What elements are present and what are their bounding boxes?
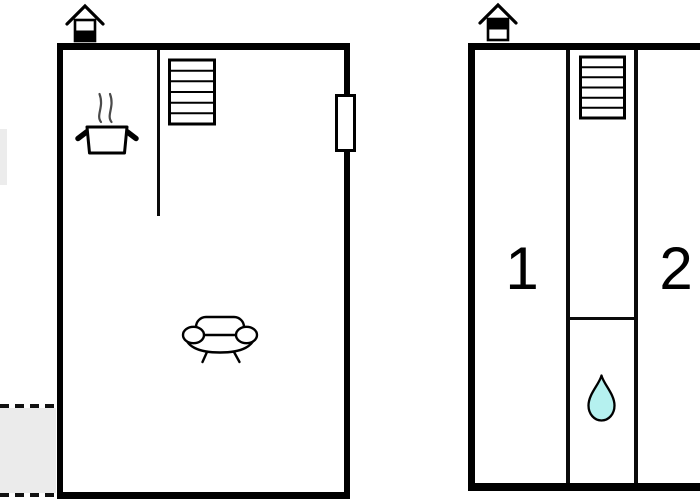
sofa-icon — [180, 312, 262, 366]
terrace-dashed-border-top — [0, 404, 57, 408]
corridor-divider-wall — [570, 317, 634, 320]
floor-plan-canvas: 1 2 — [0, 0, 700, 500]
steam-icon — [99, 94, 111, 122]
room-2-label: 2 — [650, 238, 700, 300]
wall-left — [468, 43, 475, 491]
wall-left — [57, 43, 63, 499]
chimney-icon — [65, 3, 105, 43]
stairs-icon — [167, 57, 217, 127]
stairs-icon — [578, 54, 628, 121]
edge-area — [0, 129, 7, 185]
room-1-label: 1 — [496, 238, 548, 300]
wall-bottom — [468, 483, 700, 491]
wall-top — [468, 43, 700, 50]
interior-wall — [157, 50, 160, 216]
water-drop-icon — [584, 373, 619, 425]
wall-bottom — [57, 492, 350, 499]
wall-top — [57, 43, 350, 50]
window-marker — [335, 94, 356, 152]
corridor-wall-left — [566, 50, 570, 483]
terrace-dashed-border-bottom — [0, 493, 57, 497]
chimney-icon — [478, 2, 518, 42]
terrace-area — [0, 408, 56, 493]
corridor-wall-right — [634, 50, 638, 483]
cooking-pot-icon — [75, 88, 139, 158]
